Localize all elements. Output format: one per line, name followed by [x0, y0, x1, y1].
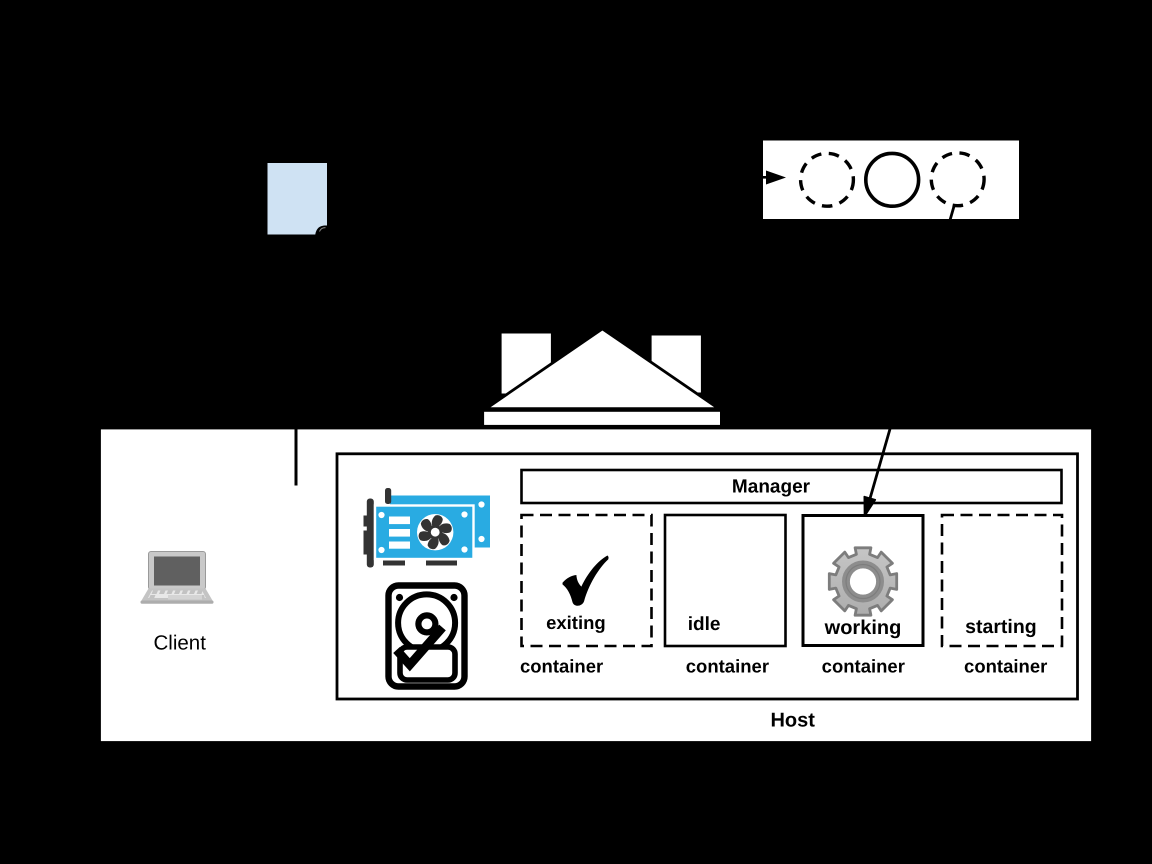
- svg-text:exiting: exiting: [546, 612, 606, 633]
- svg-text:container: container: [686, 656, 769, 677]
- svg-text:Host: Host: [770, 710, 815, 732]
- svg-text:container: container: [520, 656, 603, 677]
- svg-text:Client: Client: [153, 632, 206, 655]
- svg-text:idle: idle: [688, 614, 721, 635]
- svg-text:starting: starting: [965, 616, 1037, 638]
- svg-text:container: container: [822, 656, 905, 677]
- svg-text:Manager: Manager: [732, 477, 811, 498]
- svg-text:container: container: [964, 656, 1047, 677]
- svg-text:working: working: [824, 617, 902, 639]
